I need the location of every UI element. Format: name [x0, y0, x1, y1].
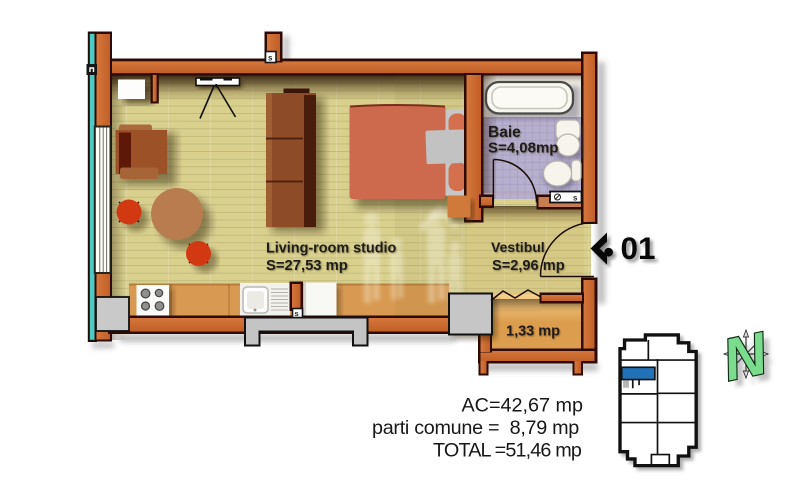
svg-text:S=4,08mp: S=4,08mp — [488, 139, 558, 156]
svg-text:S=27,53 mp: S=27,53 mp — [266, 258, 348, 274]
svg-text:s: s — [573, 194, 578, 203]
svg-text:1,33 mp: 1,33 mp — [506, 324, 560, 340]
svg-text:parti comune = 8,79 mp: parti comune = 8,79 mp — [372, 417, 579, 439]
svg-text:S=2,96 mp: S=2,96 mp — [492, 258, 565, 274]
svg-text:Vestibul: Vestibul — [491, 239, 545, 255]
svg-text:AC=42,67 mp: AC=42,67 mp — [461, 395, 583, 417]
svg-text:s: s — [268, 54, 273, 63]
svg-text:TOTAL =51,46 mp: TOTAL =51,46 mp — [433, 440, 582, 462]
svg-text:s: s — [295, 309, 299, 318]
svg-text:01: 01 — [621, 230, 656, 266]
svg-text:Living-room studio: Living-room studio — [266, 241, 397, 257]
